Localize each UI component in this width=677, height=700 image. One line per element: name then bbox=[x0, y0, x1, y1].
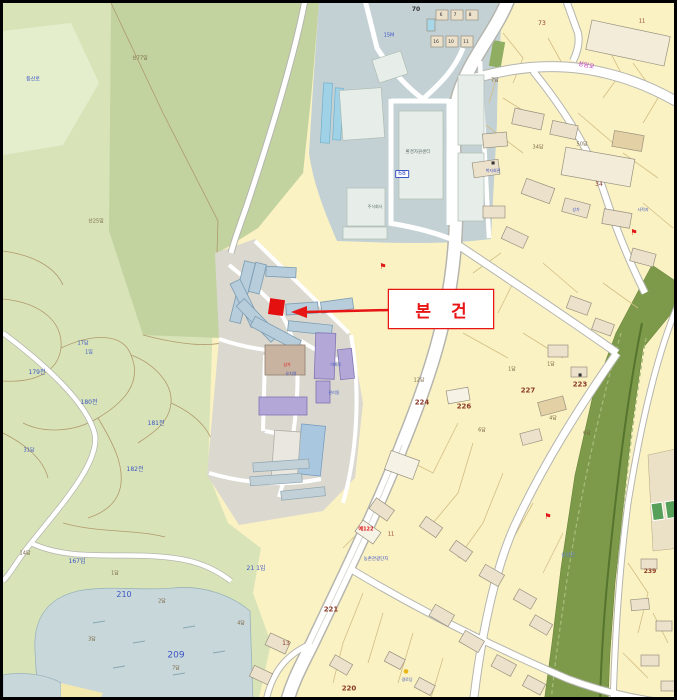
map-canvas bbox=[3, 3, 677, 700]
callout-label: 본 건 bbox=[408, 297, 473, 322]
cadastral-map: 산77임산25임등산로17답1임179전180전181전182전31답14답16… bbox=[0, 0, 677, 700]
callout-box: 본 건 bbox=[389, 290, 493, 328]
